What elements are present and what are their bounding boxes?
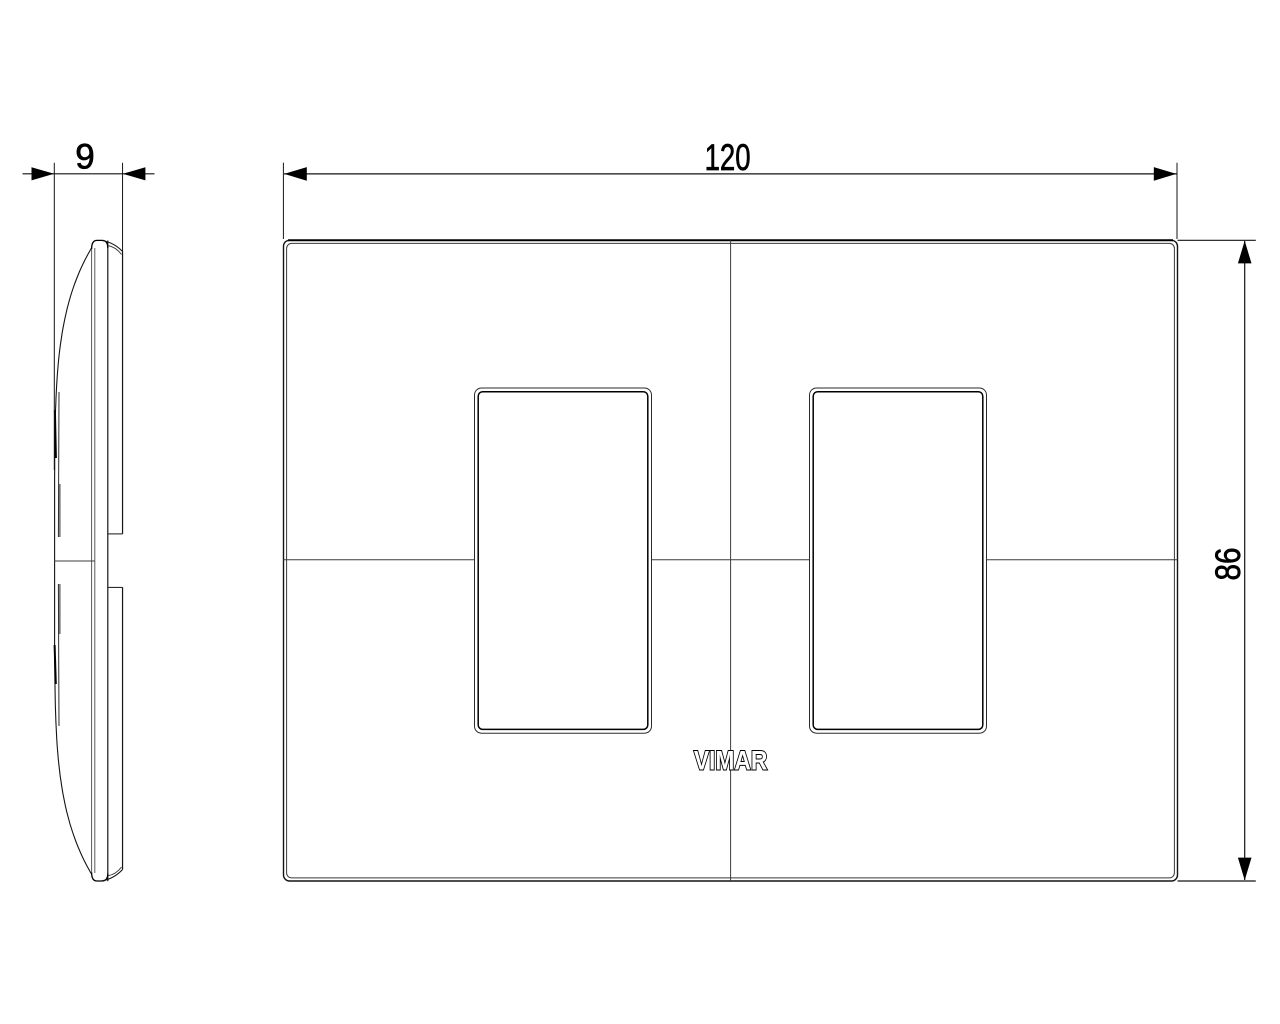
svg-text:120: 120 — [705, 137, 751, 178]
svg-text:9: 9 — [75, 138, 94, 177]
svg-text:VIMAR: VIMAR — [694, 745, 768, 775]
svg-text:86: 86 — [1209, 548, 1248, 581]
